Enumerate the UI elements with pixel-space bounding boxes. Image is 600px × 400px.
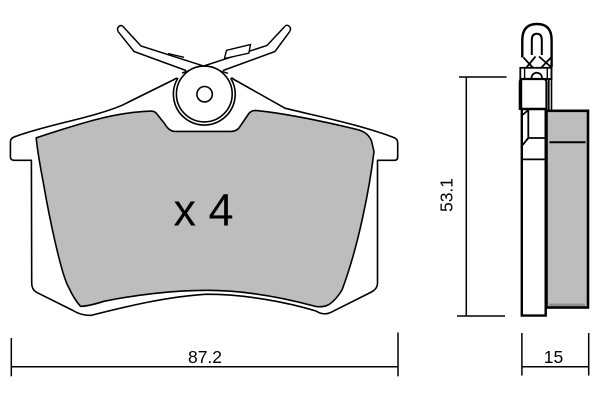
svg-text:53.1: 53.1 bbox=[437, 178, 457, 212]
svg-text:87.2: 87.2 bbox=[188, 347, 222, 367]
svg-text:x 4: x 4 bbox=[173, 185, 233, 236]
svg-text:15: 15 bbox=[544, 347, 563, 367]
